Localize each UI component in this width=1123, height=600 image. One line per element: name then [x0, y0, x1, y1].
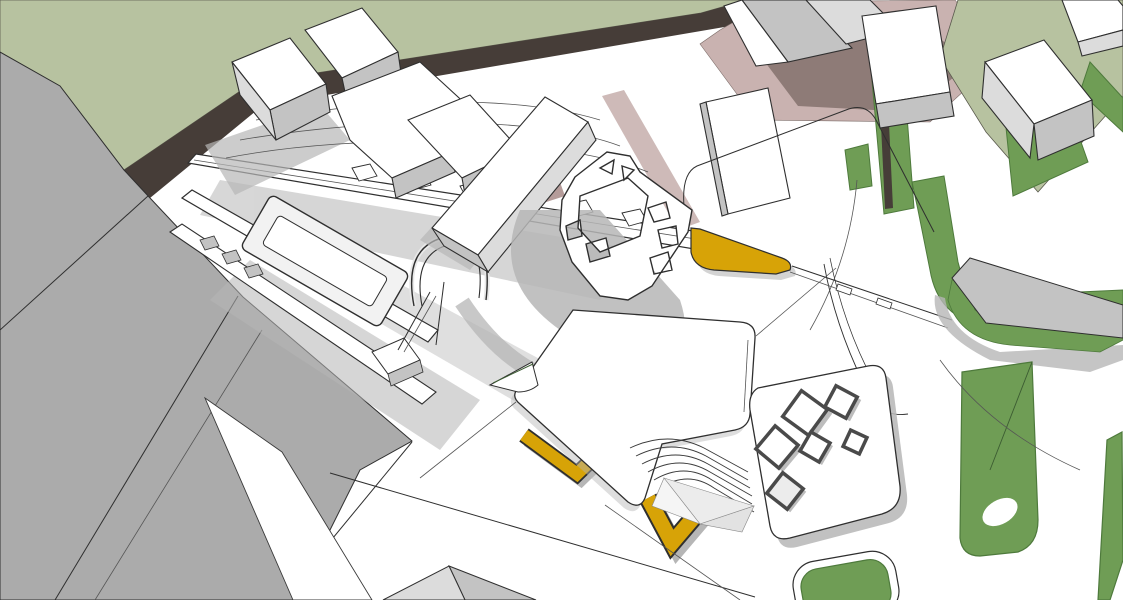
skylight-squares: [750, 366, 908, 548]
model-viewport[interactable]: [0, 0, 1123, 600]
model-viewport-stage: [0, 0, 1123, 600]
